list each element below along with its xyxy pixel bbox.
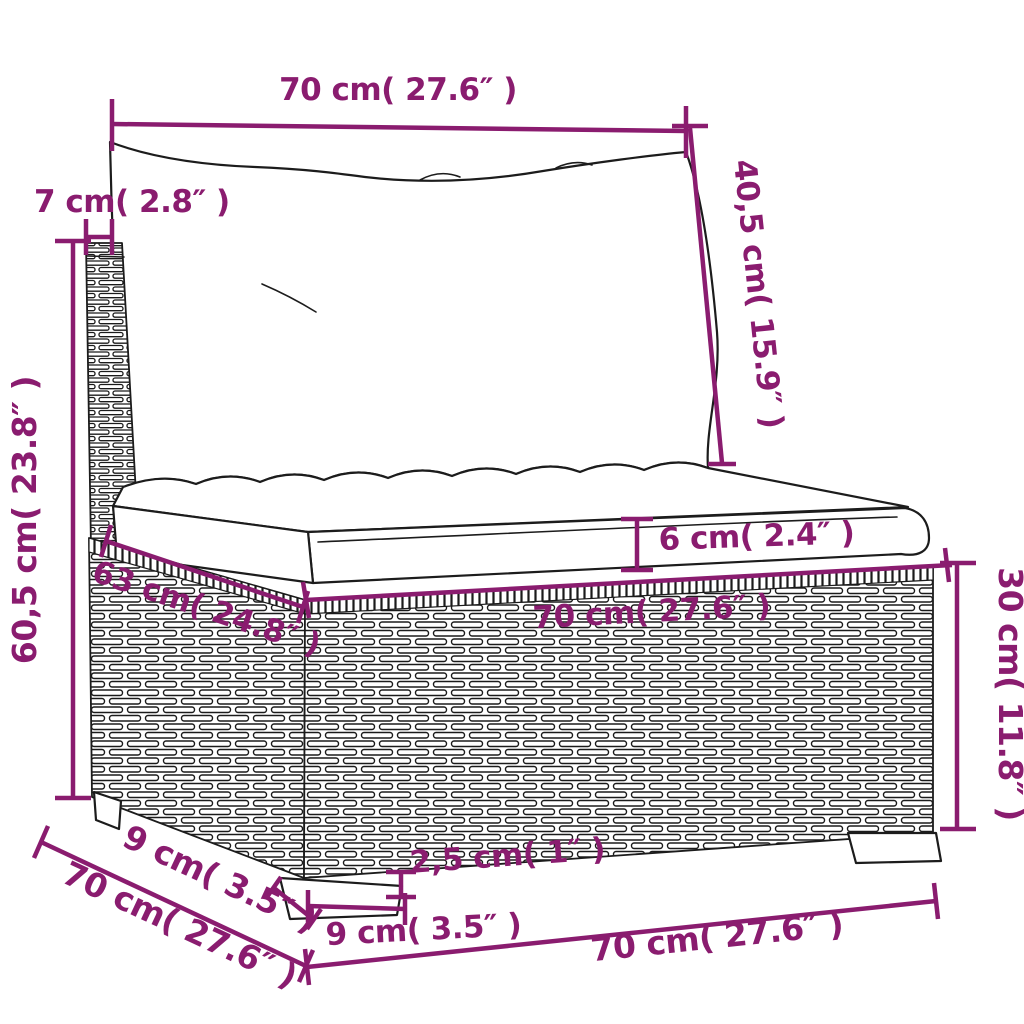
- diagram-svg: 70 cm( 27.6″ ) 7 cm( 2.8″ ) 40,5 cm( 15.…: [0, 0, 1024, 1024]
- dim-base-height: 30 cm( 11.8″ ): [940, 563, 1024, 829]
- dimension-diagram: 70 cm( 27.6″ ) 7 cm( 2.8″ ) 40,5 cm( 15.…: [0, 0, 1024, 1024]
- dim-total-height: 60,5 cm( 23.8″ ): [5, 241, 91, 798]
- foot-front-right: [848, 833, 941, 863]
- dim-label-back-depth: 7 cm( 2.8″ ): [34, 184, 230, 220]
- dim-label-back-width: 70 cm( 27.6″ ): [279, 72, 517, 108]
- back-cushion-crease: [420, 174, 460, 180]
- back-post-cap: [87, 256, 124, 257]
- dim-label-base-width-bottom: 70 cm( 27.6″ ): [589, 904, 845, 969]
- dim-label-seat-thickness: 6 cm( 2.4″ ): [658, 515, 855, 558]
- dim-label-back-cushion-height: 40,5 cm( 15.9″ ): [726, 158, 790, 431]
- dim-back-width: 70 cm( 27.6″ ): [112, 72, 686, 158]
- dim-label-total-height: 60,5 cm( 23.8″ ): [5, 376, 44, 664]
- dim-label-base-height: 30 cm( 11.8″ ): [991, 567, 1024, 821]
